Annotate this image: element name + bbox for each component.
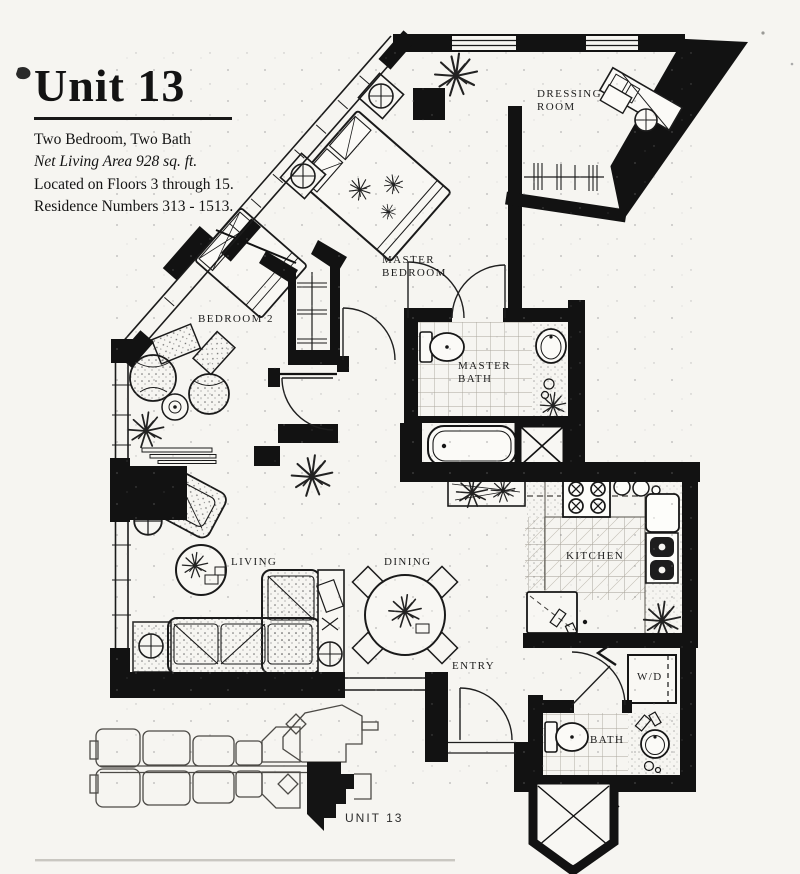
title-block: Unit 13 Two Bedroom, Two Bath Net Living… [34,62,234,219]
title-rule [34,117,232,120]
unit-title: Unit 13 [34,62,234,110]
label-dining: DINING [384,556,432,569]
label-entry: ENTRY [452,660,495,673]
label-washer-dryer: W/D [637,671,663,684]
title-line-residences: Residence Numbers 313 - 1513. [34,196,234,219]
title-line-bedbath: Two Bedroom, Two Bath [34,129,234,152]
label-keyplan-unit13: UNIT 13 [345,811,403,825]
label-bath: BATH [590,734,624,747]
label-dressing-room: DRESSING ROOM [537,88,602,113]
floorplan-page: Unit 13 Two Bedroom, Two Bath Net Living… [0,0,800,874]
title-line-area: Net Living Area 928 sq. ft. [34,151,234,174]
label-bedroom2: BEDROOM 2 [198,313,274,326]
label-living: LIVING [231,556,277,569]
label-kitchen: KITCHEN [566,550,624,563]
label-master-bedroom: MASTER BEDROOM [382,254,447,279]
title-line-floors: Located on Floors 3 through 15. [34,174,234,197]
label-master-bath: MASTER BATH [458,360,511,385]
